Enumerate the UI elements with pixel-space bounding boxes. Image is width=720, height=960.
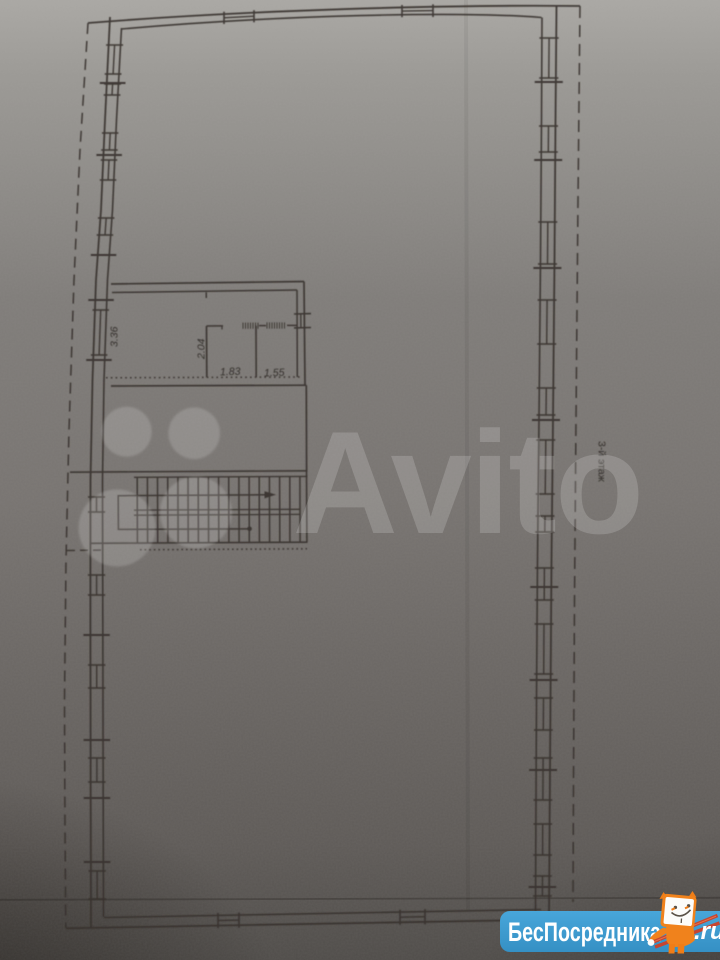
svg-text:.ru: .ru (694, 918, 720, 945)
svg-text:БесПосредника: БесПосредника (508, 917, 662, 947)
